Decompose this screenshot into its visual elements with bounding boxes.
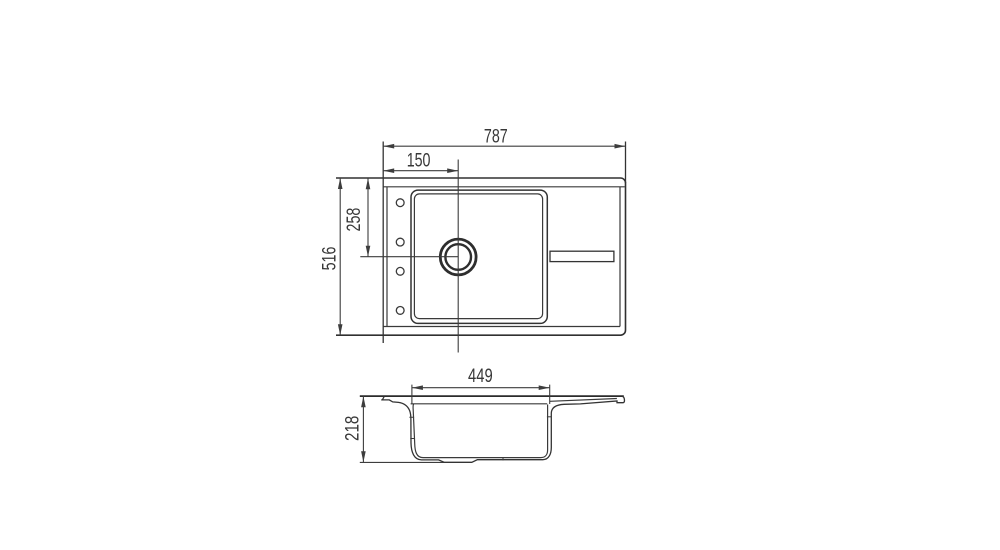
svg-text:516: 516	[319, 247, 340, 271]
svg-text:218: 218	[342, 416, 363, 441]
svg-text:449: 449	[468, 366, 493, 387]
svg-text:150: 150	[407, 150, 431, 171]
svg-text:258: 258	[344, 208, 365, 232]
svg-text:787: 787	[484, 127, 508, 148]
